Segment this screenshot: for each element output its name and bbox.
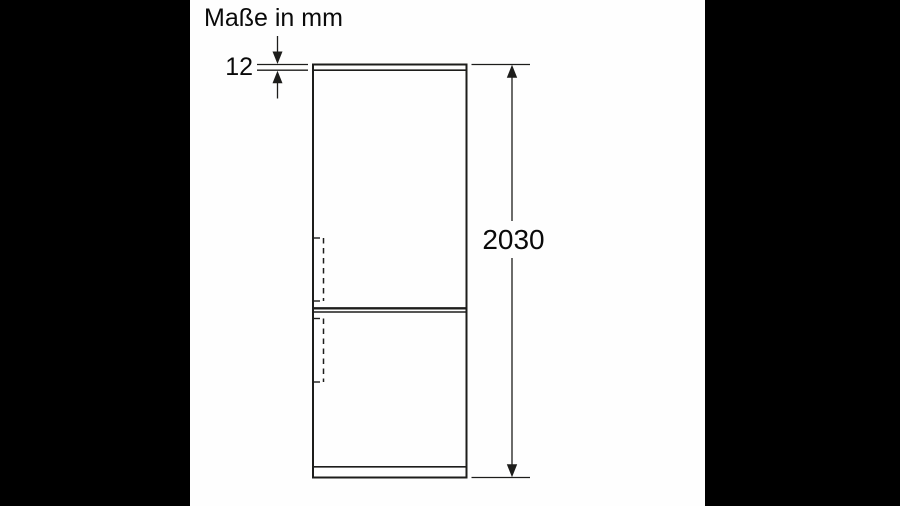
dim-label-overall-height: 2030 — [482, 224, 544, 255]
dimension-diagram: Maße in mm 12 2030 — [0, 0, 900, 506]
units-label: Maße in mm — [204, 4, 343, 32]
screenshot-stage: Maße in mm 12 2030 — [0, 0, 900, 506]
dim-label-top-plate: 12 — [225, 53, 253, 81]
diagram-canvas — [190, 0, 705, 506]
